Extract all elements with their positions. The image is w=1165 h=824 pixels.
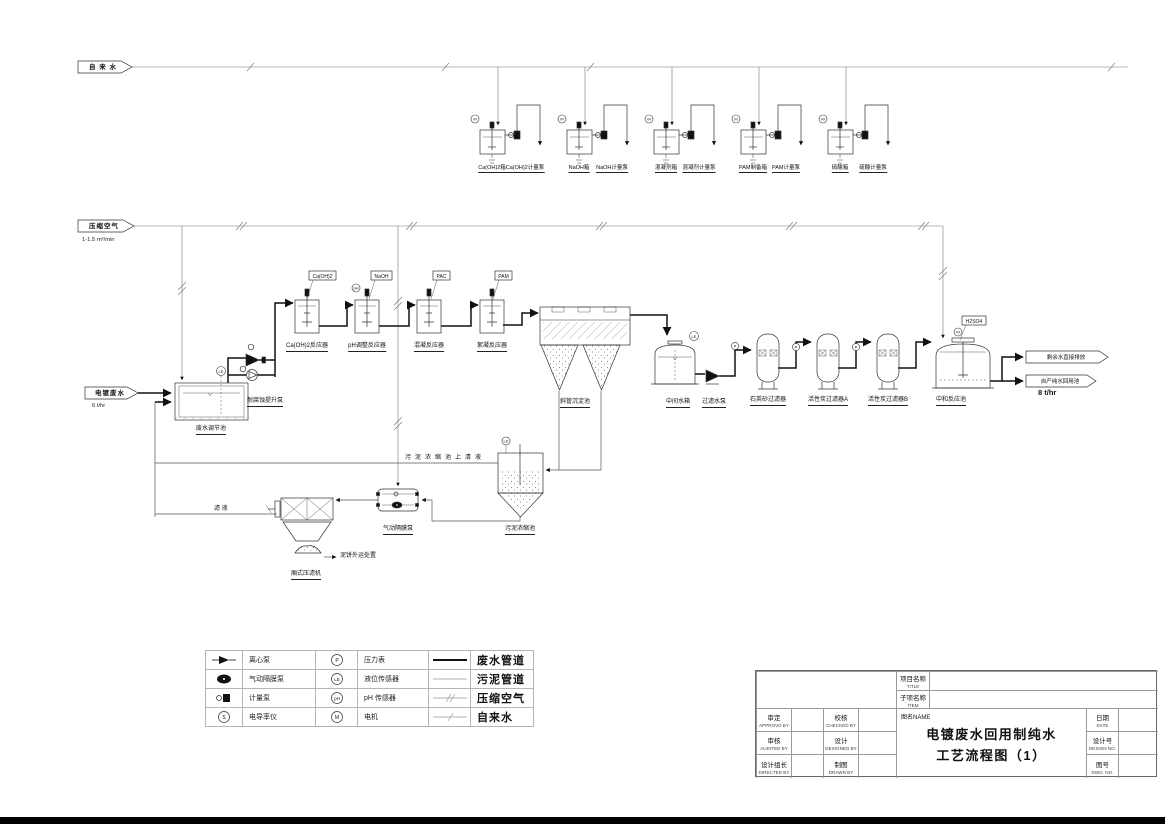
project-name-value xyxy=(929,671,1158,690)
dosing-tank-label: PAM制备箱 xyxy=(739,165,767,173)
title-block-blank-cell xyxy=(756,671,896,708)
svg-text:P: P xyxy=(855,345,858,350)
filter-press xyxy=(266,498,333,553)
conductivity-meter-icon: S xyxy=(206,708,243,727)
sand-filter xyxy=(757,334,779,389)
tap-water-flag-label: 自 来 水 xyxy=(89,64,117,71)
legend-line-label: 自来水 xyxy=(471,708,534,727)
carbon-filter-a xyxy=(817,334,839,389)
legend-label: 计量泵 xyxy=(243,689,316,708)
reactor-label: 混凝反应器 xyxy=(414,343,444,352)
reactor-label: pH调整反应器 xyxy=(348,343,386,352)
carbon-filter-b-label: 活性炭过滤器B xyxy=(868,397,908,406)
item-name-value xyxy=(929,690,1158,708)
air-flow-rate: 1-1.5 m³/min xyxy=(82,237,115,243)
sand-filter-label: 石英砂过滤器 xyxy=(750,397,786,406)
legend-line-label: 废水管道 xyxy=(471,651,534,670)
wastewater-piping xyxy=(138,303,1023,402)
audited-by-label: 审核AUDITED BY xyxy=(756,731,791,754)
svg-text:P: P xyxy=(795,345,798,350)
svg-text:PAC: PAC xyxy=(437,274,447,280)
tap-line-sample xyxy=(429,708,471,727)
svg-text:LE: LE xyxy=(504,439,509,444)
dwg-no-value xyxy=(1118,754,1158,778)
regulating-tank-label: 废水调节池 xyxy=(196,426,226,435)
legend-line-label: 污泥管道 xyxy=(471,670,534,689)
neutralization-tank xyxy=(932,338,994,388)
dosing-unit-caoh2 xyxy=(480,105,540,163)
approved-by-label: 审定APPROVD BY xyxy=(756,708,791,731)
dosing-pump-label: Ca(OH)2计量泵 xyxy=(506,165,545,173)
ph-sensor-icon: pH xyxy=(316,689,358,708)
svg-text:M: M xyxy=(956,330,959,335)
sludge-thickener xyxy=(498,444,543,517)
design-no-value xyxy=(1118,731,1158,754)
process-flow-drawing: M M M M M LE LE LE pH P P P M Ca(OH)2 Na… xyxy=(0,0,1165,824)
legend-label: 电机 xyxy=(358,708,429,727)
tap-water-piping xyxy=(132,63,1128,125)
dosing-pump-label: PAM计量泵 xyxy=(772,165,800,173)
reactor-flocculation xyxy=(480,289,504,333)
filter-pump-label: 过滤水泵 xyxy=(702,399,726,408)
legend-label: 电导率仪 xyxy=(243,708,316,727)
legend-label: 气动隔膜泵 xyxy=(243,670,316,689)
compressed-air-piping xyxy=(134,222,947,486)
air-line-sample xyxy=(429,689,471,708)
design-no-label: 设计号DESIGN NO. xyxy=(1086,731,1118,754)
supernatant-line-label: 污泥浓缩池上清液 xyxy=(405,455,485,462)
filtrate-label: 滤 液 xyxy=(214,506,228,513)
dosing-unit-acid xyxy=(828,105,888,163)
drawing-title-cell: 图名NAME 电镀废水回用制纯水 工艺流程图（1） xyxy=(896,708,1086,778)
wastewater-inlet-label: 电镀废水 xyxy=(95,390,125,397)
drawn-by-label: 制图DRAWN BY xyxy=(823,754,858,778)
discharge-flag-label: 剩余水直接排放 xyxy=(1047,355,1086,361)
dosing-tank-label: NaOH箱 xyxy=(569,165,590,173)
designed-by-label: 设计DESIGNED BY xyxy=(823,731,858,754)
centrifugal-pump-icon xyxy=(206,651,243,670)
legend-label: pH 传感器 xyxy=(358,689,429,708)
svg-text:P: P xyxy=(734,344,737,349)
filter-press-label: 厢式压滤机 xyxy=(291,571,321,580)
reactor-caoh2 xyxy=(295,289,319,333)
legend-label: 离心泵 xyxy=(243,651,316,670)
designed-by-value xyxy=(858,731,896,754)
dwg-no-label: 图号DWG. NO. xyxy=(1086,754,1118,778)
carbon-filter-a-label: 活性炭过滤器A xyxy=(808,397,848,406)
legend-label: 液位传感器 xyxy=(358,670,429,689)
svg-text:LE: LE xyxy=(334,677,340,682)
svg-text:H2SO4: H2SO4 xyxy=(966,319,983,325)
date-value xyxy=(1118,708,1158,731)
project-name-label: 项目名称TITLE xyxy=(896,671,929,690)
tag-texts: Ca(OH)2 NaOH PAC PAM H2SO4 xyxy=(312,274,982,325)
legend-table: 离心泵 P 压力表 废水管道 气动隔膜泵 LE 液位传感器 污泥管道 计量泵 p… xyxy=(205,650,534,727)
reactor-label: Ca(OH)2反应器 xyxy=(286,343,328,352)
settler-label: 斜管沉淀池 xyxy=(560,399,590,408)
approved-by-value xyxy=(791,708,823,731)
reuse-flow-rate: 8 t/hr xyxy=(1038,389,1056,397)
dosing-unit-naoh xyxy=(567,105,627,163)
item-name-label: 子项名称ITEM xyxy=(896,690,929,708)
svg-text:Ca(OH)2: Ca(OH)2 xyxy=(312,274,332,280)
audited-by-value xyxy=(791,731,823,754)
dosing-tank-label: 混凝剂箱 xyxy=(655,165,677,173)
dosing-pump-label: 混凝剂计量泵 xyxy=(682,165,715,173)
directed-by-label: 设计组长DIRECTED BY xyxy=(756,754,791,778)
svg-text:PAM: PAM xyxy=(498,274,508,280)
lift-pump-label: 耐腐蚀提升泵 xyxy=(247,398,283,407)
dosing-pump-label: NaOH计量泵 xyxy=(596,165,628,173)
intermediate-tank xyxy=(651,341,699,384)
svg-text:NaOH: NaOH xyxy=(375,274,389,280)
svg-text:M: M xyxy=(821,117,824,122)
legend-label: 压力表 xyxy=(358,651,429,670)
drawing-title: 电镀废水回用制纯水 工艺流程图（1） xyxy=(897,725,1086,767)
dosing-tank-label: Ca(OH)2箱 xyxy=(478,165,506,173)
svg-text:LE: LE xyxy=(692,334,697,339)
dosing-pump-label: 硫酸计量泵 xyxy=(859,165,887,173)
thickener-label: 污泥浓缩池 xyxy=(505,526,535,535)
reactor-label: 絮凝反应器 xyxy=(477,343,507,352)
intermediate-tank-label: 中间水箱 xyxy=(666,399,690,408)
svg-text:M: M xyxy=(334,715,338,721)
reactor-coagulation xyxy=(417,289,441,333)
reuse-flag-label: 自产纯水回用池 xyxy=(1041,379,1080,385)
reactor-ph-adjust xyxy=(355,289,379,333)
motor-icon: M xyxy=(316,708,358,727)
pressure-gauge-icon: P xyxy=(316,651,358,670)
waste-line-sample xyxy=(429,651,471,670)
svg-text:pH: pH xyxy=(353,286,358,291)
dosing-unit-pac xyxy=(654,105,714,163)
dosing-unit-pam xyxy=(741,105,801,163)
carbon-filter-b xyxy=(877,334,899,389)
wastewater-flow-rate: 6 t/hr xyxy=(92,403,105,409)
regulating-tank xyxy=(175,376,248,420)
svg-text:M: M xyxy=(473,117,476,122)
compressed-air-flag-label: 压缩空气 xyxy=(89,223,119,230)
date-label: 日期DATE xyxy=(1086,708,1118,731)
sheet-bottom-edge xyxy=(0,817,1165,824)
drawn-by-value xyxy=(858,754,896,778)
svg-text:pH: pH xyxy=(334,696,340,701)
svg-text:M: M xyxy=(647,117,650,122)
checked-by-label: 校核CHECKED BY xyxy=(823,708,858,731)
cake-disposal-label: 泥饼外运处置 xyxy=(340,553,376,560)
svg-text:LE: LE xyxy=(219,369,224,374)
drawing-name-label: 图名NAME xyxy=(901,712,930,721)
title-block: 项目名称TITLE 子项名称ITEM 审定APPROVD BY 校核CHECKE… xyxy=(755,670,1157,777)
directed-by-value xyxy=(791,754,823,778)
diaphragm-pump-label: 气动隔膜泵 xyxy=(383,526,413,535)
checked-by-value xyxy=(858,708,896,731)
metering-pump-icon xyxy=(206,689,243,708)
tube-settler xyxy=(540,307,630,390)
legend-line-label: 压缩空气 xyxy=(471,689,534,708)
diaphragm-pump-icon xyxy=(206,670,243,689)
level-sensor-icon: LE xyxy=(316,670,358,689)
sludge-line-sample xyxy=(429,670,471,689)
svg-text:M: M xyxy=(734,117,737,122)
dosing-tank-label: 硫酸箱 xyxy=(832,165,849,173)
neutralization-tank-label: 中和反应池 xyxy=(936,397,966,406)
diaphragm-pump-assembly xyxy=(377,489,419,511)
filter-pump xyxy=(706,370,719,384)
svg-text:M: M xyxy=(560,117,563,122)
